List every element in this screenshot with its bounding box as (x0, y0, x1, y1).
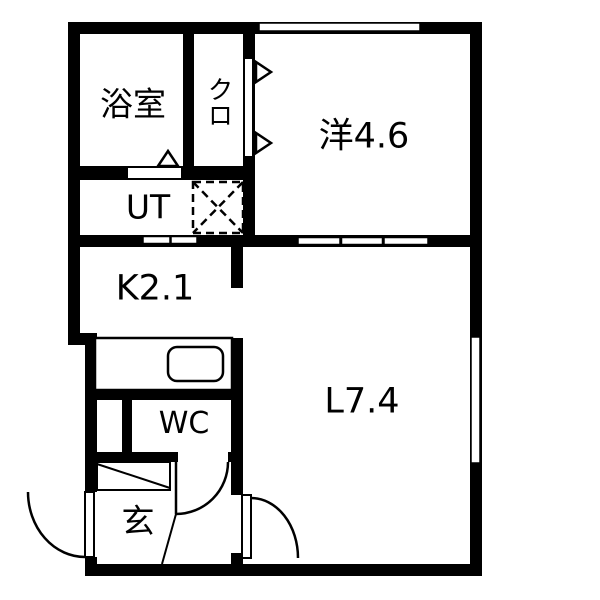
western-sliding-panel-1 (298, 238, 340, 245)
wall-right (470, 22, 482, 576)
closet-door-panel (244, 58, 253, 157)
room-label-entrance: 玄 (122, 505, 155, 538)
room-label-closet: クロ (205, 76, 231, 128)
wall-bath-closet-divider (183, 34, 194, 178)
living-door-leaf (242, 495, 251, 558)
kitchen-counter (95, 338, 232, 390)
washing-machine-space (193, 182, 243, 233)
wall-bath-bottom-right (182, 166, 255, 180)
right-window (471, 337, 480, 463)
wall-left-upper (68, 22, 80, 345)
room-label-toilet: WC (159, 409, 210, 439)
triangle-door-mark (158, 151, 178, 166)
washing-machine-cross-2 (193, 182, 243, 233)
entrance-door (28, 492, 94, 557)
ut-sliding-panel-1 (143, 237, 170, 244)
entrance-door-arc (28, 492, 85, 557)
room-label-bathroom: 浴室 (100, 88, 166, 121)
wall-kitchen-stub (231, 247, 243, 288)
wall-bottom (85, 564, 482, 576)
top-window (259, 23, 420, 31)
wall-bath-bottom-left (80, 166, 127, 180)
washing-machine-box (193, 182, 243, 233)
wall-wc-bottom-left (97, 452, 178, 462)
western-sliding-panel-3 (384, 238, 428, 245)
wall-left-bottom-stub (85, 557, 97, 576)
room-label-kitchen: K2.1 (116, 272, 195, 307)
washing-machine-cross-1 (193, 182, 243, 233)
wc-door (176, 462, 228, 514)
ut-sliding-panel-2 (171, 237, 197, 244)
living-door-arc (251, 498, 298, 558)
floorplan-drawing (0, 0, 600, 600)
triangle-door-mark (256, 133, 271, 153)
western-sliding-panel-2 (342, 238, 383, 245)
room-label-western-room: 洋4.6 (319, 120, 410, 155)
room-label-utility: UT (126, 191, 170, 224)
triangle-door-mark (256, 62, 271, 82)
living-door (242, 495, 298, 558)
room-label-living: L7.4 (324, 385, 399, 420)
kitchen-sink-icon (168, 347, 223, 381)
wall-left-jog (68, 333, 97, 345)
wall-wc-bottom-right (228, 452, 243, 462)
entrance-door-leaf (85, 492, 94, 557)
wall-store-wc-divider (122, 400, 132, 452)
bath-door-panel (127, 167, 182, 179)
wc-door-arc (176, 462, 228, 514)
closet-door (244, 58, 271, 157)
entrance-hall-boundary (162, 514, 176, 564)
floorplan: 浴室 クロ 洋4.6 UT K2.1 L7.4 WC 玄 (0, 0, 600, 600)
bath-door (127, 151, 182, 179)
